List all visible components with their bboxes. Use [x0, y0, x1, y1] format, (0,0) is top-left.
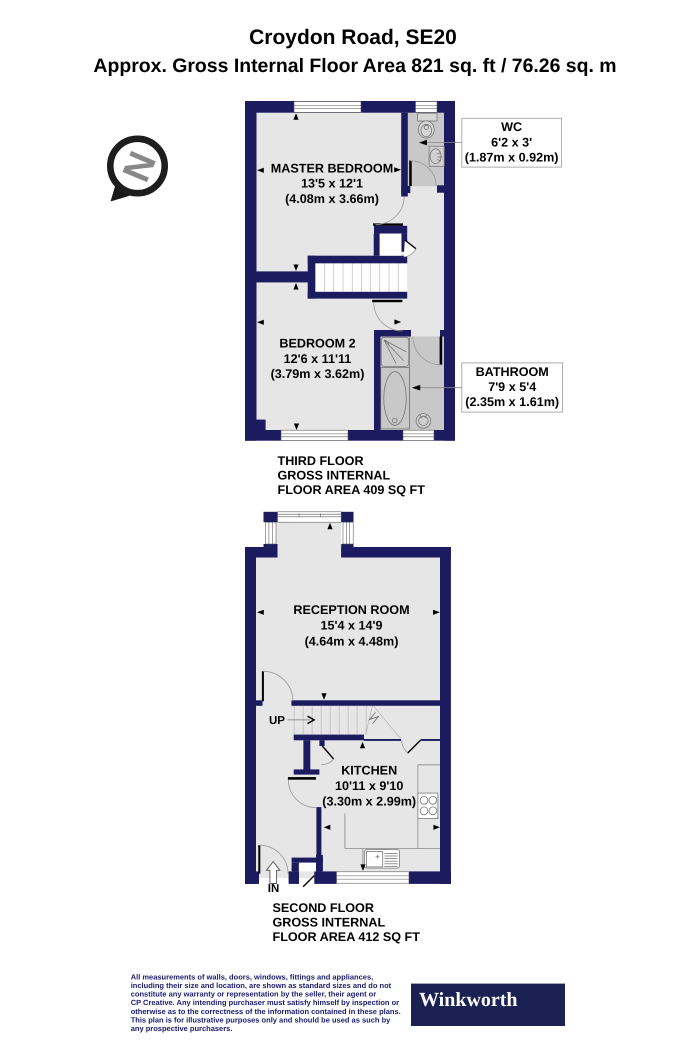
svg-text:IN: IN — [268, 883, 280, 895]
svg-text:12'6 x 11'11: 12'6 x 11'11 — [284, 352, 352, 366]
svg-text:Winkworth: Winkworth — [419, 989, 518, 1011]
svg-text:(2.35m x 1.61m): (2.35m x 1.61m) — [465, 395, 559, 409]
svg-text:MASTER BEDROOM: MASTER BEDROOM — [271, 161, 393, 175]
svg-text:RECEPTION ROOM: RECEPTION ROOM — [293, 603, 409, 617]
svg-text:WC: WC — [501, 120, 522, 134]
svg-text:any prospective purchasers.: any prospective purchasers. — [131, 1024, 233, 1033]
svg-text:BEDROOM 2: BEDROOM 2 — [279, 337, 355, 351]
svg-text:GROSS INTERNAL: GROSS INTERNAL — [273, 915, 386, 929]
svg-text:10'11 x 9'10: 10'11 x 9'10 — [335, 779, 403, 793]
svg-text:GROSS INTERNAL: GROSS INTERNAL — [278, 468, 391, 482]
svg-text:KITCHEN: KITCHEN — [341, 763, 397, 777]
svg-text:(3.30m x 2.99m): (3.30m x 2.99m) — [322, 794, 416, 808]
svg-text:Approx. Gross Internal Floor A: Approx. Gross Internal Floor Area 821 sq… — [93, 55, 616, 77]
svg-text:7'9 x 5'4: 7'9 x 5'4 — [488, 380, 536, 394]
svg-text:(3.79m x 3.62m): (3.79m x 3.62m) — [271, 367, 365, 381]
svg-text:15'4 x 14'9: 15'4 x 14'9 — [320, 619, 382, 633]
svg-text:(4.64m x 4.48m): (4.64m x 4.48m) — [305, 634, 399, 648]
svg-text:BATHROOM: BATHROOM — [476, 365, 549, 379]
svg-text:FLOOR AREA 409 SQ FT: FLOOR AREA 409 SQ FT — [278, 483, 426, 497]
svg-text:FLOOR AREA 412 SQ FT: FLOOR AREA 412 SQ FT — [273, 930, 421, 944]
svg-text:(1.87m x 0.92m): (1.87m x 0.92m) — [465, 151, 559, 165]
svg-text:6'2 x 3': 6'2 x 3' — [491, 135, 532, 149]
svg-text:Croydon Road, SE20: Croydon Road, SE20 — [249, 26, 457, 49]
svg-text:13'5 x 12'1: 13'5 x 12'1 — [301, 177, 363, 191]
svg-text:UP: UP — [269, 715, 285, 727]
svg-text:(4.08m x 3.66m): (4.08m x 3.66m) — [285, 192, 379, 206]
svg-text:THIRD FLOOR: THIRD FLOOR — [278, 454, 364, 468]
svg-text:SECOND FLOOR: SECOND FLOOR — [273, 901, 374, 915]
